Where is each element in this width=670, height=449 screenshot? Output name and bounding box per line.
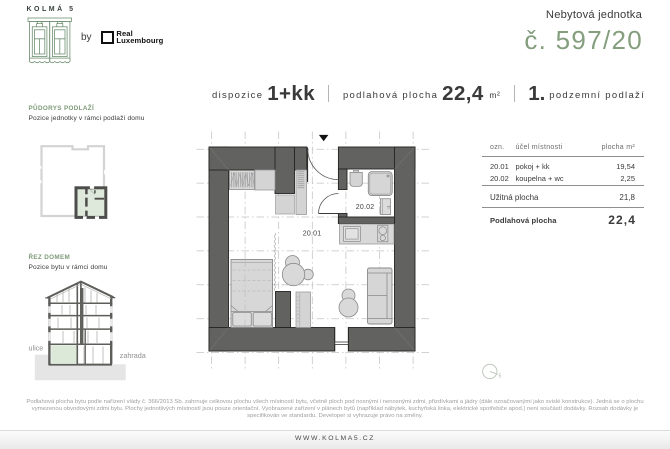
svg-text:20.02: 20.02 — [356, 204, 375, 211]
svg-text:20.01: 20.01 — [303, 231, 322, 238]
svg-text:5: 5 — [499, 374, 502, 380]
